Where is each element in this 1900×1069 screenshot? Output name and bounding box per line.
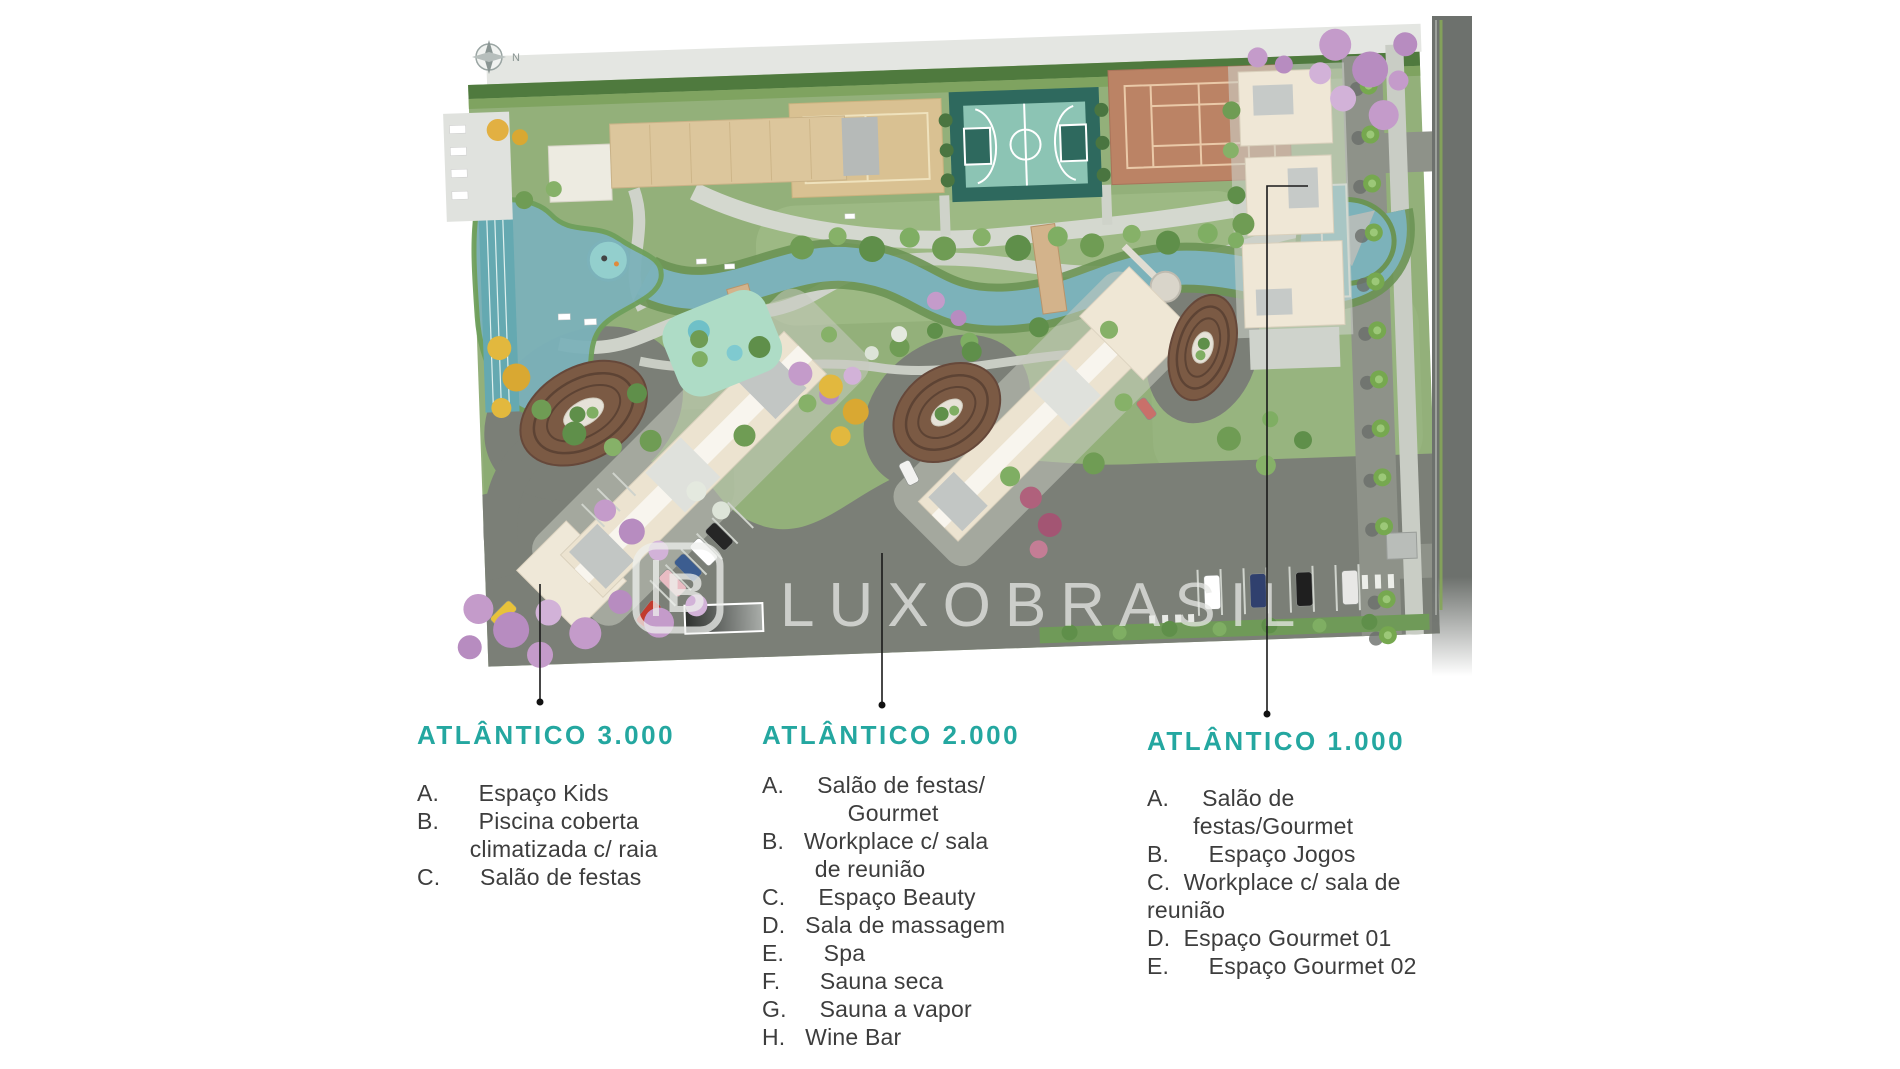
watermark-text: LUXOBRASIL — [780, 571, 1309, 640]
legend-title-3000: ATLÂNTICO 3.000 — [417, 720, 675, 751]
legend-title-2000: ATLÂNTICO 2.000 — [762, 720, 1020, 751]
legend-items-2000: A. Salão de festas/ Gourmet B. Workplace… — [762, 771, 1020, 1051]
legend-atlantico-1000: ATLÂNTICO 1.000 A. Salão de festas/Gourm… — [1147, 726, 1417, 980]
kids-pool — [588, 240, 629, 281]
compass-north-label: N — [512, 52, 520, 64]
basketball-court — [949, 87, 1103, 202]
legend-items-3000: A. Espaço Kids B. Piscina coberta climat… — [417, 779, 675, 891]
legend-atlantico-2000: ATLÂNTICO 2.000 A. Salão de festas/ Gour… — [762, 720, 1020, 1051]
watermark-monogram: B — [666, 561, 706, 624]
gatehouse — [1386, 532, 1417, 559]
legend-items-1000: A. Salão de festas/Gourmet B. Espaço Jog… — [1147, 784, 1417, 980]
main-street-band — [1432, 16, 1472, 676]
legend-title-1000: ATLÂNTICO 1.000 — [1147, 726, 1417, 757]
legend-atlantico-3000: ATLÂNTICO 3.000 A. Espaço Kids B. Piscin… — [417, 720, 675, 891]
